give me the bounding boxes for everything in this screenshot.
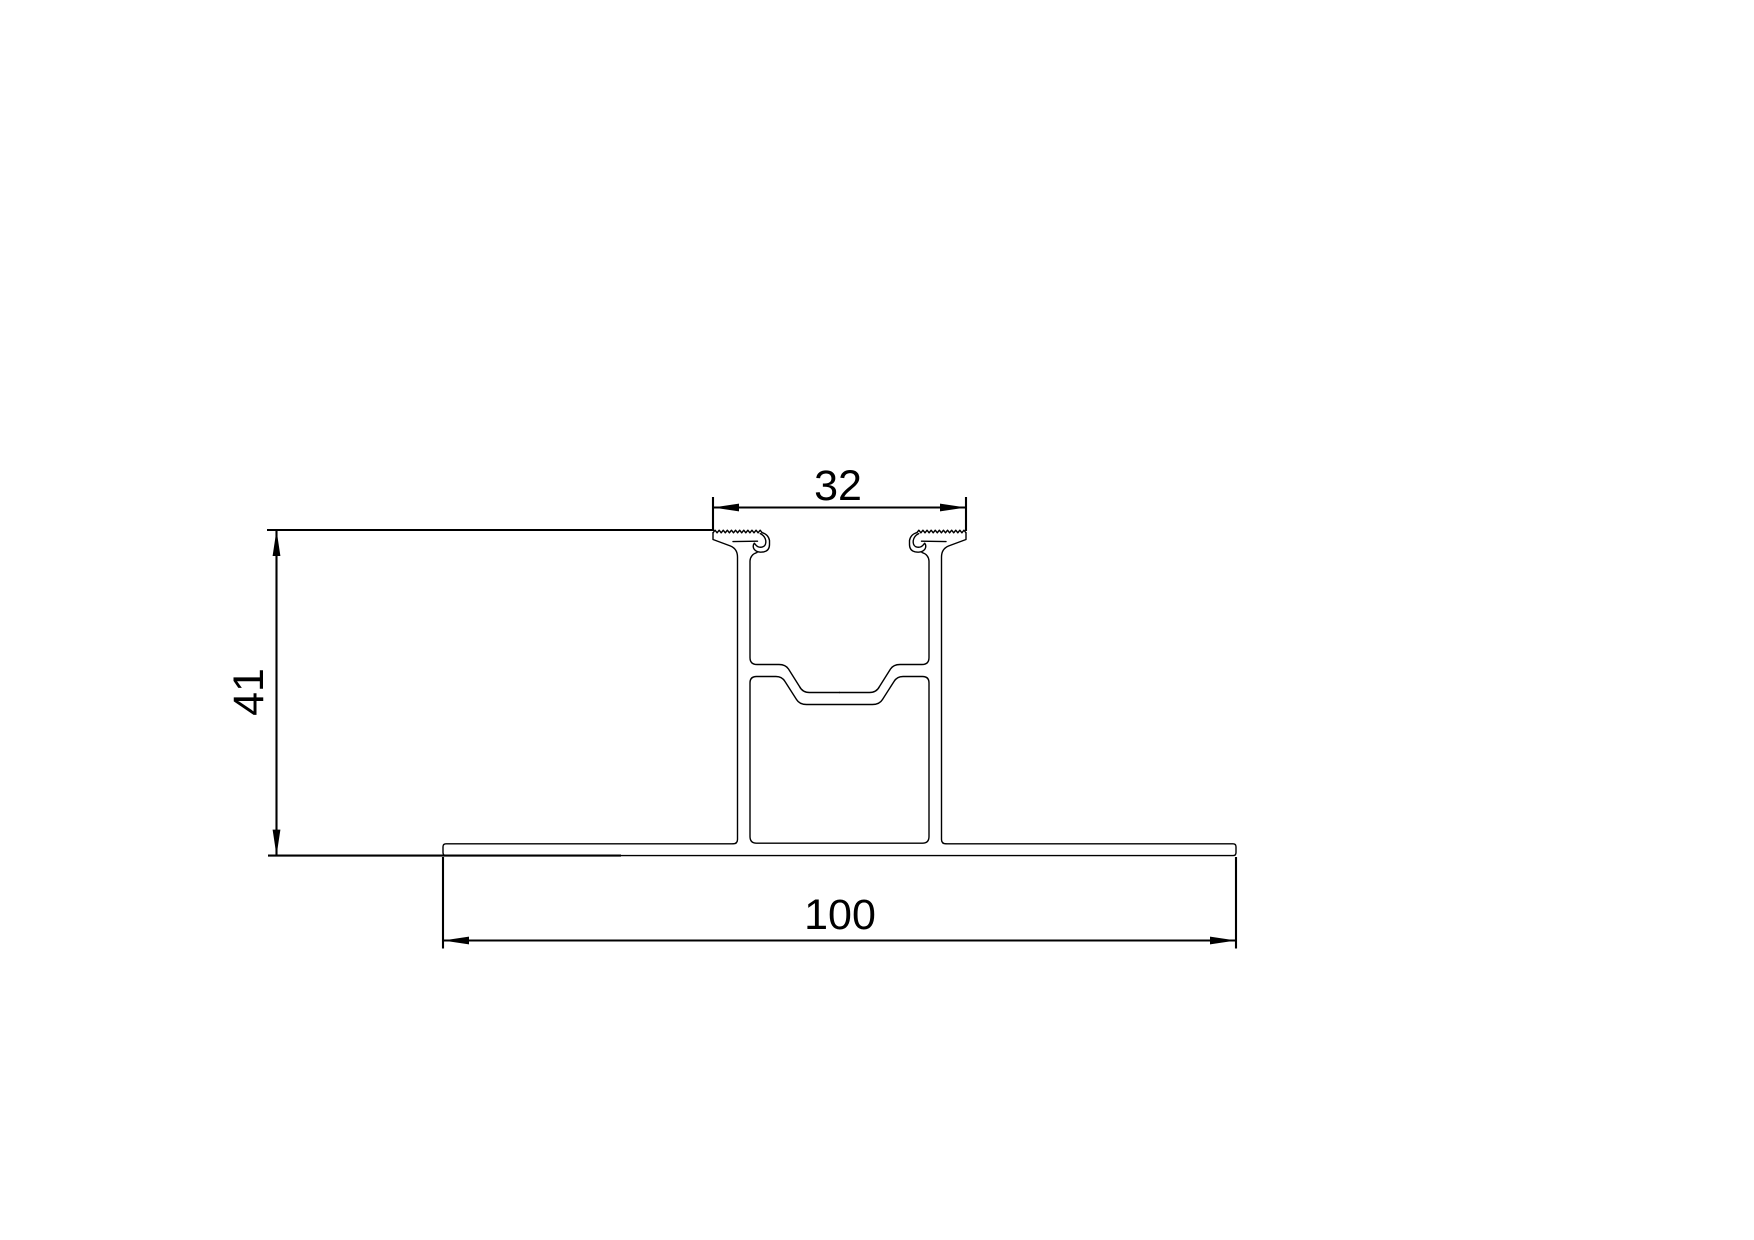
arrowhead-100-left	[443, 937, 469, 945]
technical-drawing: 32 41 100	[0, 0, 1754, 1240]
arrowhead-32-left	[713, 504, 739, 512]
profile-rib-inner-wall	[750, 553, 840, 693]
dimension-label-41: 41	[225, 668, 273, 716]
dimension-top-width: 32	[713, 462, 966, 531]
profile-base-plate	[443, 844, 1236, 856]
profile-serrated-top	[917, 530, 966, 533]
dimension-base-width: 100	[443, 857, 1236, 949]
dimension-overall-height: 41	[225, 530, 712, 856]
profile-left-half	[713, 530, 840, 844]
profile-pad-outer-edge	[713, 533, 738, 844]
dimension-label-100: 100	[804, 891, 876, 939]
profile-rib-inner-wall	[840, 553, 930, 693]
dimension-label-32: 32	[814, 462, 862, 510]
profile-pad-outer-edge	[942, 533, 967, 844]
arrowhead-41-bottom	[273, 830, 281, 856]
profile-lower-cavity	[750, 677, 929, 844]
profile-right-half	[840, 530, 967, 844]
arrowhead-32-right	[940, 504, 966, 512]
profile-clamp-hook	[910, 533, 926, 553]
arrowhead-100-right	[1210, 937, 1236, 945]
profile-clamp-hook	[753, 533, 769, 553]
profile-cross-section	[443, 530, 1236, 855]
arrowhead-41-top	[273, 530, 281, 556]
profile-serrated-top	[713, 530, 762, 533]
technical-drawing-canvas: 32 41 100	[0, 0, 1754, 1240]
